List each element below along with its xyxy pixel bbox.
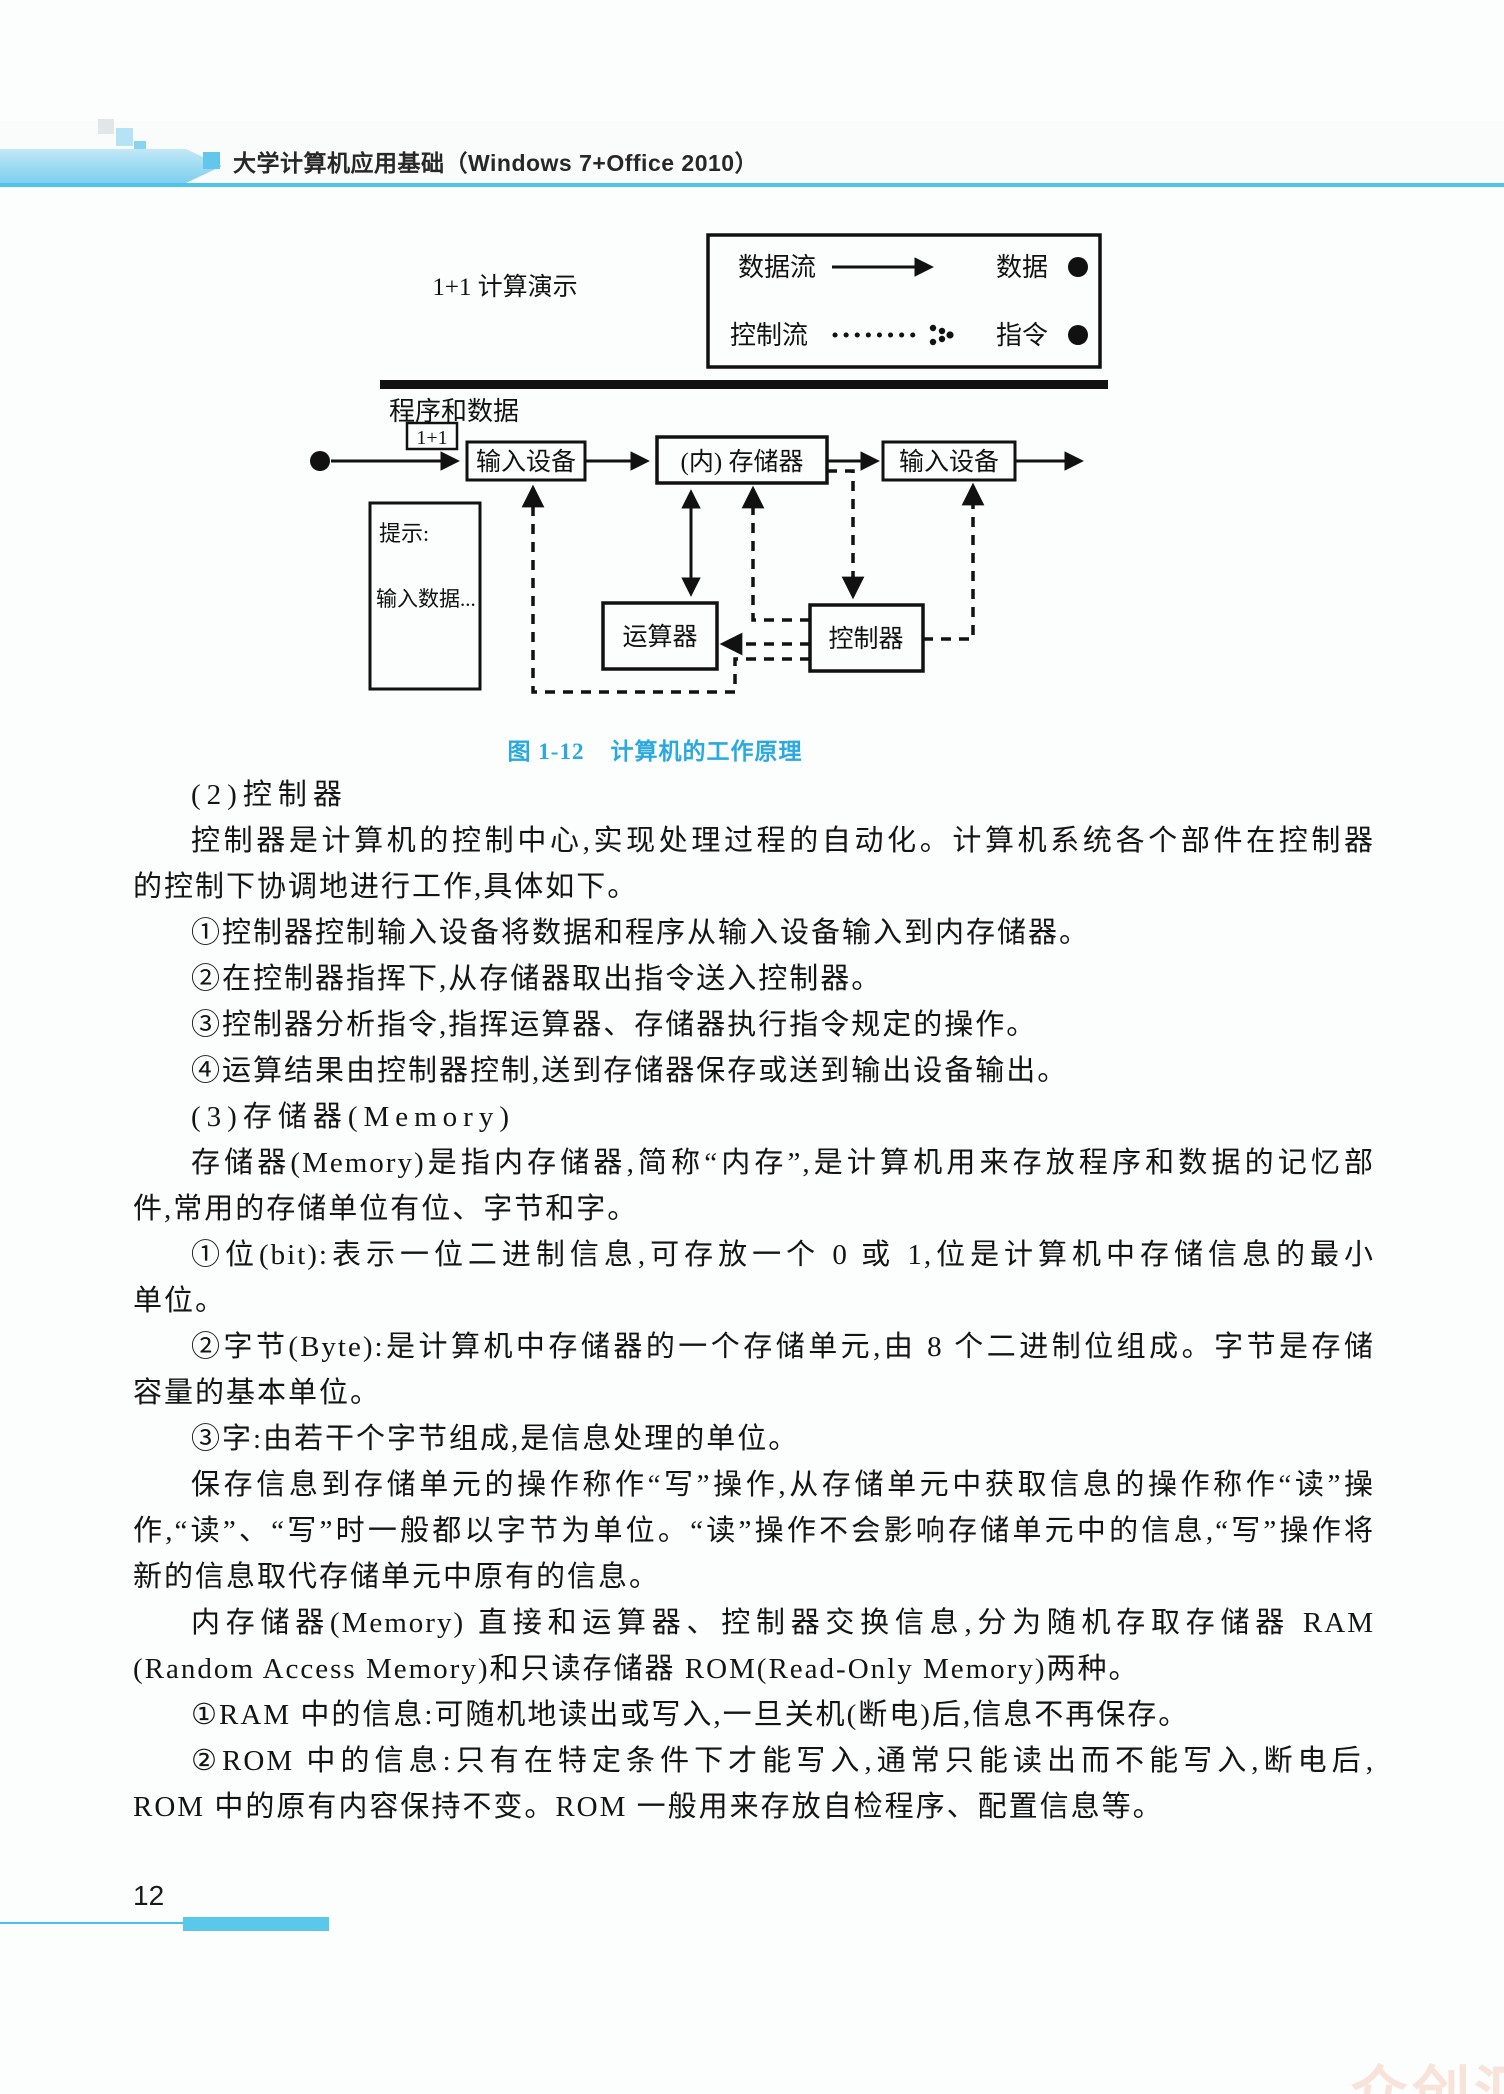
start-dot-icon [310, 451, 330, 471]
body-line: ①RAM 中的信息:可随机地读出或写入,一旦关机(断电)后,信息不再保存。 [133, 1692, 1375, 1738]
body-line: 保存信息到存储单元的操作称作“写”操作,从存储单元中获取信息的操作称作“读”操 [133, 1462, 1375, 1508]
body-line: 作,“读”、“写”时一般都以字节为单位。“读”操作不会影响存储单元中的信息,“写… [133, 1508, 1375, 1554]
body-line: ①控制器控制输入设备将数据和程序从输入设备输入到内存储器。 [133, 910, 1375, 956]
demo-title: 1+1 计算演示 [432, 273, 577, 301]
body-text: (2)控制器 控制器是计算机的控制中心,实现处理过程的自动化。计算机系统各个部件… [133, 772, 1375, 1830]
footer-line [0, 1922, 183, 1924]
dotted-arrow-icon [835, 325, 954, 345]
control-flow-lines [533, 471, 973, 692]
body-line: 件,常用的存储单位有位、字节和字。 [133, 1186, 1375, 1232]
body-line: 存储器(Memory)是指内存储器,简称“内存”,是计算机用来存放程序和数据的记… [133, 1140, 1375, 1186]
body-line: 控制器是计算机的控制中心,实现处理过程的自动化。计算机系统各个部件在控制器 [133, 818, 1375, 864]
control-unit-label: 控制器 [828, 625, 903, 653]
book-page: 大学计算机应用基础（Windows 7+Office 2010） 数据流 数据 … [0, 0, 1504, 2094]
ctrl-cu-to-output [923, 486, 973, 639]
figure-computer-working-principle: 数据流 数据 控制流 指令 1+1 计算演示 程序和数据 [283, 192, 1113, 732]
body-line: ①位(bit):表示一位二进制信息,可存放一个 0 或 1,位是计算机中存储信息… [133, 1232, 1375, 1278]
body-line: (3)存储器(Memory) [133, 1094, 1375, 1140]
legend-instruction-label: 指令 [996, 321, 1048, 350]
hint-text: 输入数据... [376, 587, 476, 611]
body-line: 容量的基本单位。 [133, 1370, 1375, 1416]
legend-control-flow-label: 控制流 [730, 321, 808, 350]
body-line: 内存储器(Memory) 直接和运算器、控制器交换信息,分为随机存取存储器 RA… [133, 1600, 1375, 1646]
body-line: (2)控制器 [133, 772, 1375, 818]
header-bullet-icon [203, 152, 220, 169]
program-data-label: 程序和数据 [389, 397, 519, 426]
instruction-dot-icon [1068, 325, 1088, 345]
watermark: 众创汇嘉 [1350, 2046, 1504, 2094]
thick-rule [380, 380, 1108, 389]
data-dot-icon [1068, 257, 1088, 277]
legend-data-label: 数据 [996, 253, 1048, 282]
decor-square-icon [98, 119, 114, 134]
legend-box: 数据流 数据 控制流 指令 [708, 235, 1100, 367]
book-header-title: 大学计算机应用基础（Windows 7+Office 2010） [233, 148, 1233, 178]
figure-caption: 图 1-12计算机的工作原理 [240, 736, 1070, 768]
input-device-label: 输入设备 [476, 448, 576, 476]
body-line: ④运算结果由控制器控制,送到存储器保存或送到输出设备输出。 [133, 1048, 1375, 1094]
body-line: ③字:由若干个字节组成,是信息处理的单位。 [133, 1416, 1375, 1462]
output-device-label: 输入设备 [899, 448, 999, 476]
alu-label: 运算器 [622, 623, 697, 651]
body-line: 新的信息取代存储单元中原有的信息。 [133, 1554, 1375, 1600]
decor-square-icon [116, 128, 133, 146]
ctrl-cu-to-memory [753, 489, 810, 620]
body-line: (Random Access Memory)和只读存储器 ROM(Read-On… [133, 1646, 1375, 1692]
body-line: ③控制器分析指令,指挥运算器、存储器执行指令规定的操作。 [133, 1002, 1375, 1048]
hint-title: 提示: [379, 521, 429, 546]
body-line: ②ROM 中的信息:只有在特定条件下才能写入,通常只能读出而不能写入,断电后, [133, 1738, 1375, 1784]
body-line: ②在控制器指挥下,从存储器取出指令送入控制器。 [133, 956, 1375, 1002]
body-line: ②字节(Byte):是计算机中存储器的一个存储单元,由 8 个二进制位组成。字节… [133, 1324, 1375, 1370]
ctrl-cu-to-input [533, 488, 810, 692]
page-number: 12 [133, 1880, 164, 1912]
body-line: 单位。 [133, 1278, 1375, 1324]
ctrl-memory-to-cu [827, 471, 853, 596]
figure-caption-title: 计算机的工作原理 [610, 739, 802, 764]
legend-data-flow-label: 数据流 [738, 253, 816, 282]
body-line: 的控制下协调地进行工作,具体如下。 [133, 864, 1375, 910]
body-line: ROM 中的原有内容保持不变。ROM 一般用来存放自检程序、配置信息等。 [133, 1784, 1375, 1830]
input-tag-label: 1+1 [416, 427, 447, 449]
header-rule [0, 183, 1504, 187]
memory-label: (内) 存储器 [681, 448, 804, 476]
footer-bar [183, 1917, 329, 1931]
header-ribbon [0, 149, 222, 183]
figure-caption-number: 图 1-12 [508, 739, 585, 764]
